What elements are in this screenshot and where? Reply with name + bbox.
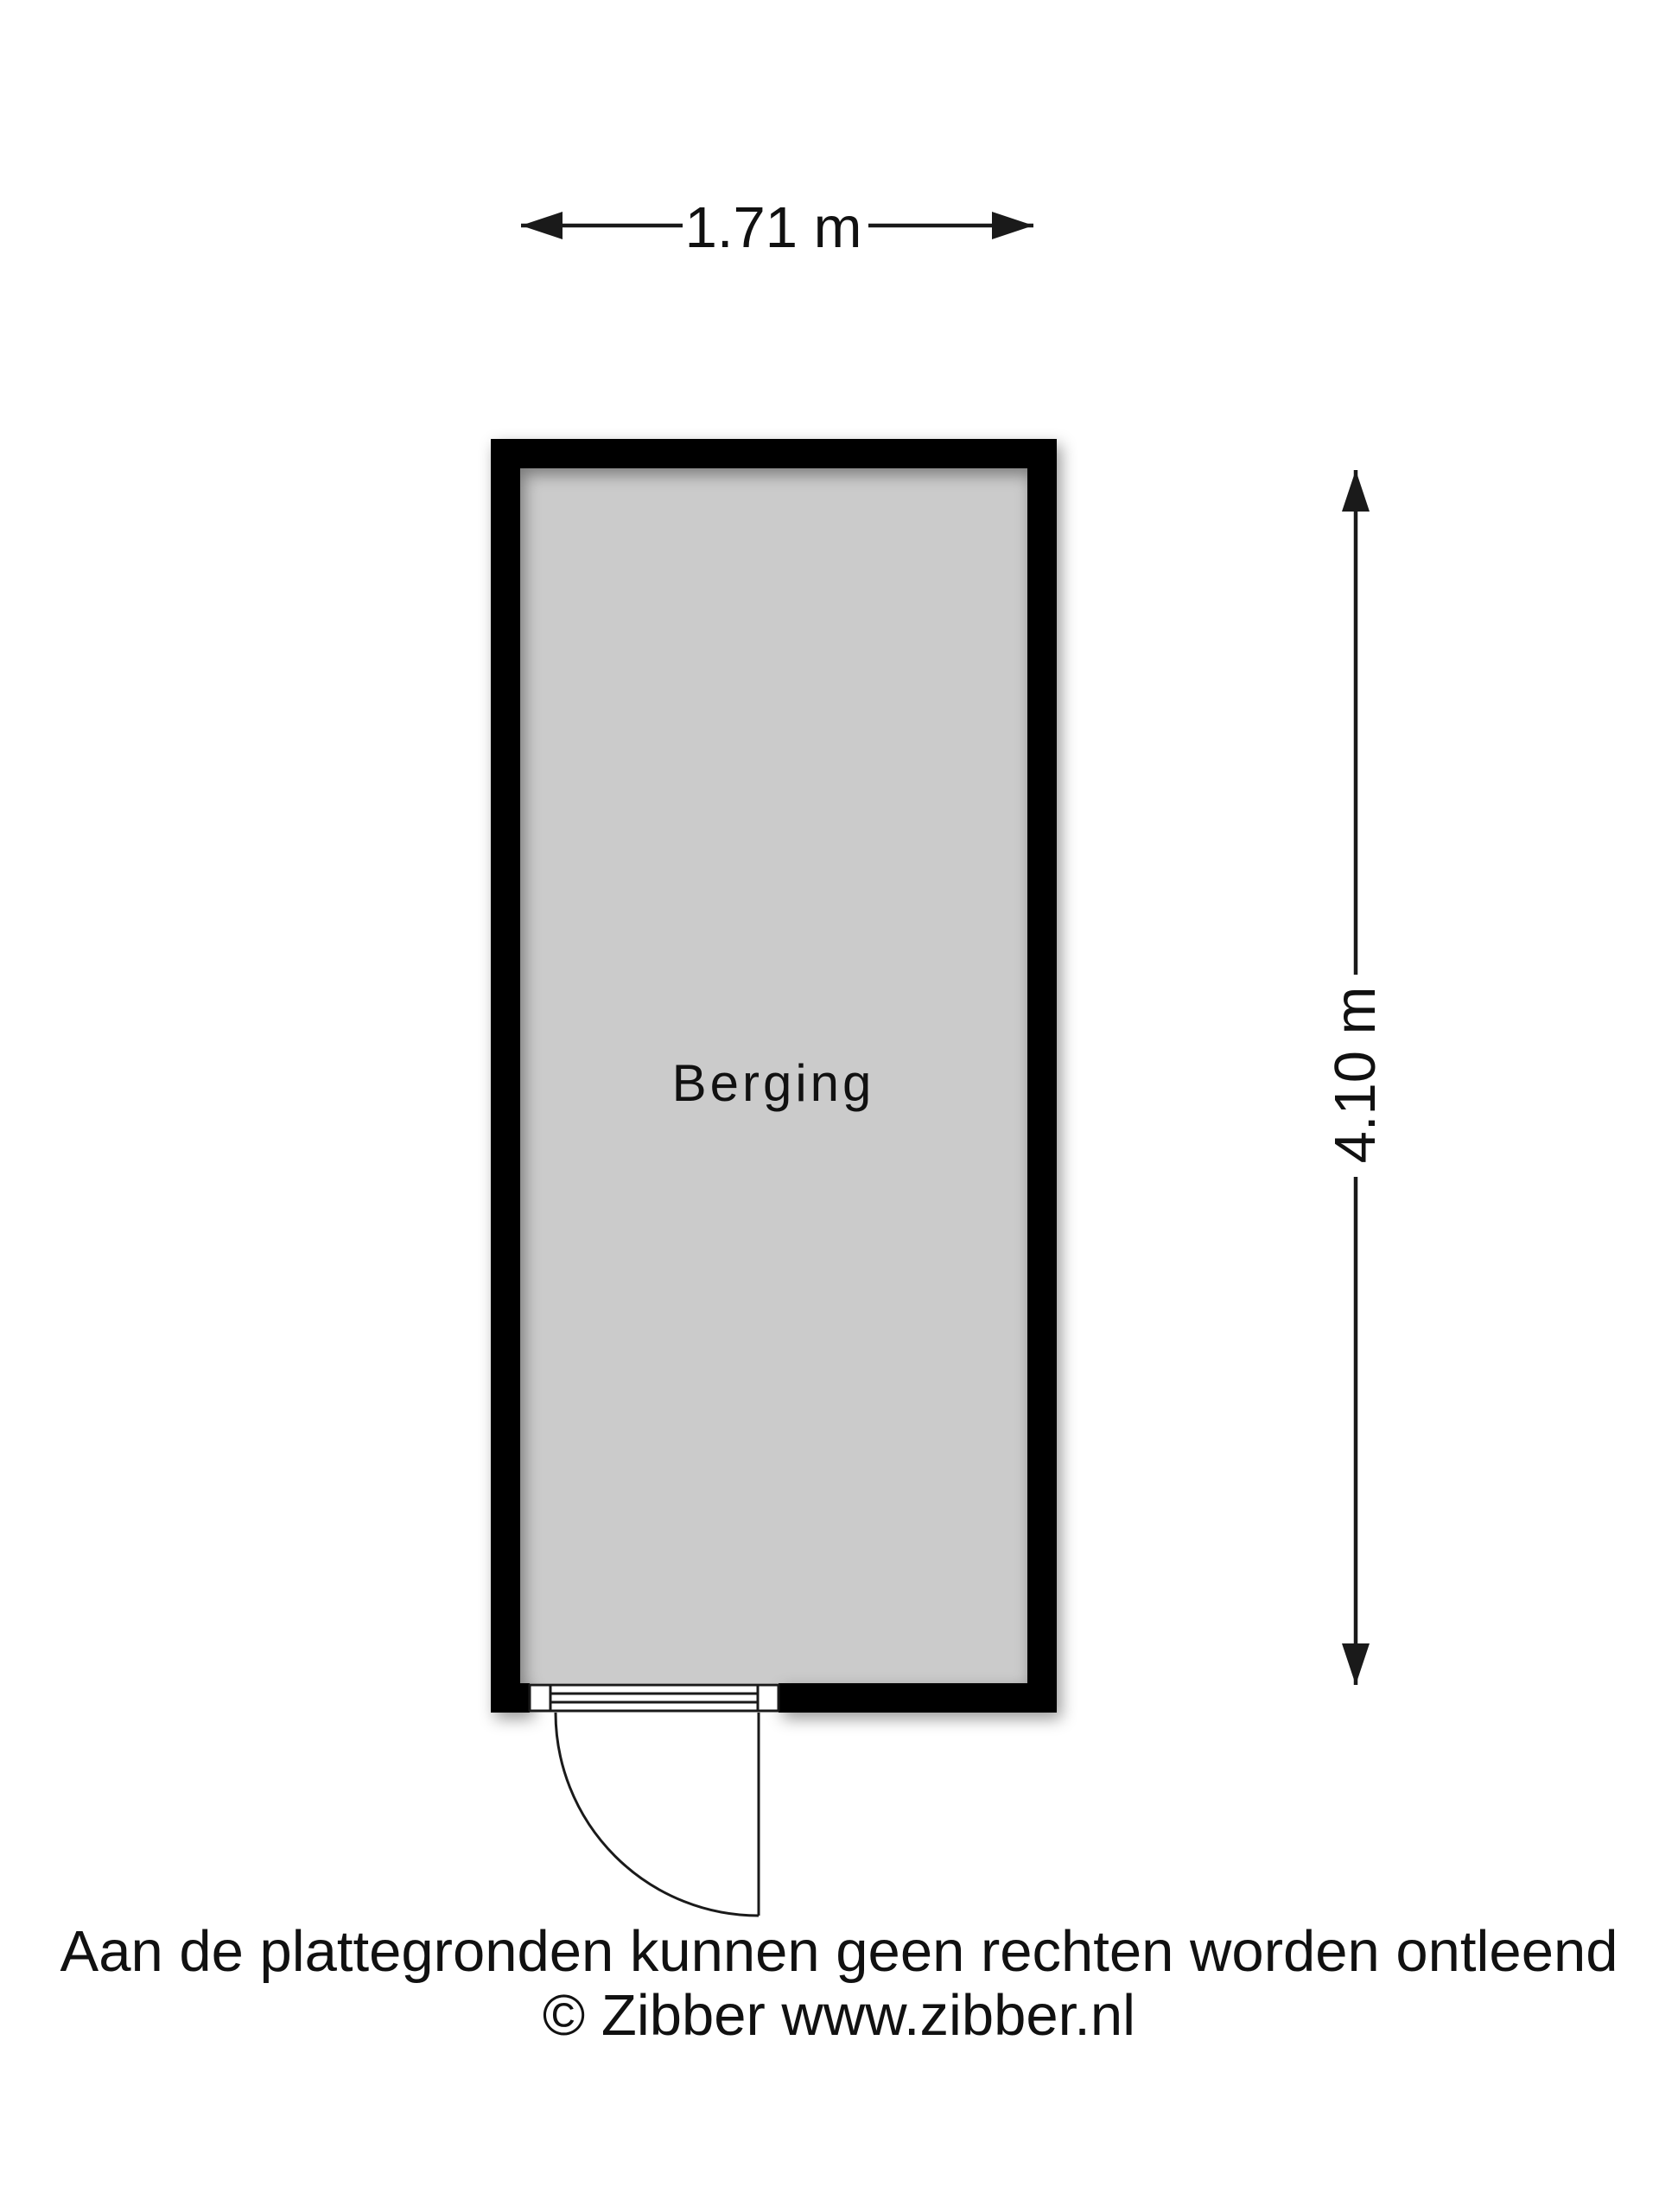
arrow-left-icon [521, 212, 563, 239]
height-dimension-label: 4.10 m [1323, 987, 1388, 1164]
door-swing-arc [556, 1713, 759, 1916]
arrow-up-icon [1342, 470, 1370, 512]
width-dimension: 1.71 m [521, 195, 1033, 260]
arrow-right-icon [992, 212, 1033, 239]
wall-bottom-left [491, 1683, 530, 1713]
room-label: Berging [672, 1054, 875, 1112]
door-sill-frame [530, 1685, 779, 1711]
door [556, 1713, 759, 1916]
wall-left [491, 439, 520, 1713]
wall-top [491, 439, 1057, 468]
wall-right [1027, 439, 1057, 1713]
width-dimension-label: 1.71 m [685, 195, 862, 260]
footer-copyright: © Zibber www.zibber.nl [543, 1983, 1135, 2048]
floor-plan-canvas: 1.71 m 4.10 m Berging Aan de plattegrond… [0, 0, 1659, 2212]
door-sill [530, 1685, 779, 1711]
arrow-down-icon [1342, 1643, 1370, 1685]
footer-disclaimer: Aan de plattegronden kunnen geen rechten… [60, 1919, 1618, 1984]
wall-bottom-right [779, 1683, 1057, 1713]
floor-plan-page: 1.71 m 4.10 m Berging Aan de plattegrond… [0, 0, 1659, 2212]
footer: Aan de plattegronden kunnen geen rechten… [60, 1919, 1618, 2048]
height-dimension: 4.10 m [1323, 470, 1388, 1685]
